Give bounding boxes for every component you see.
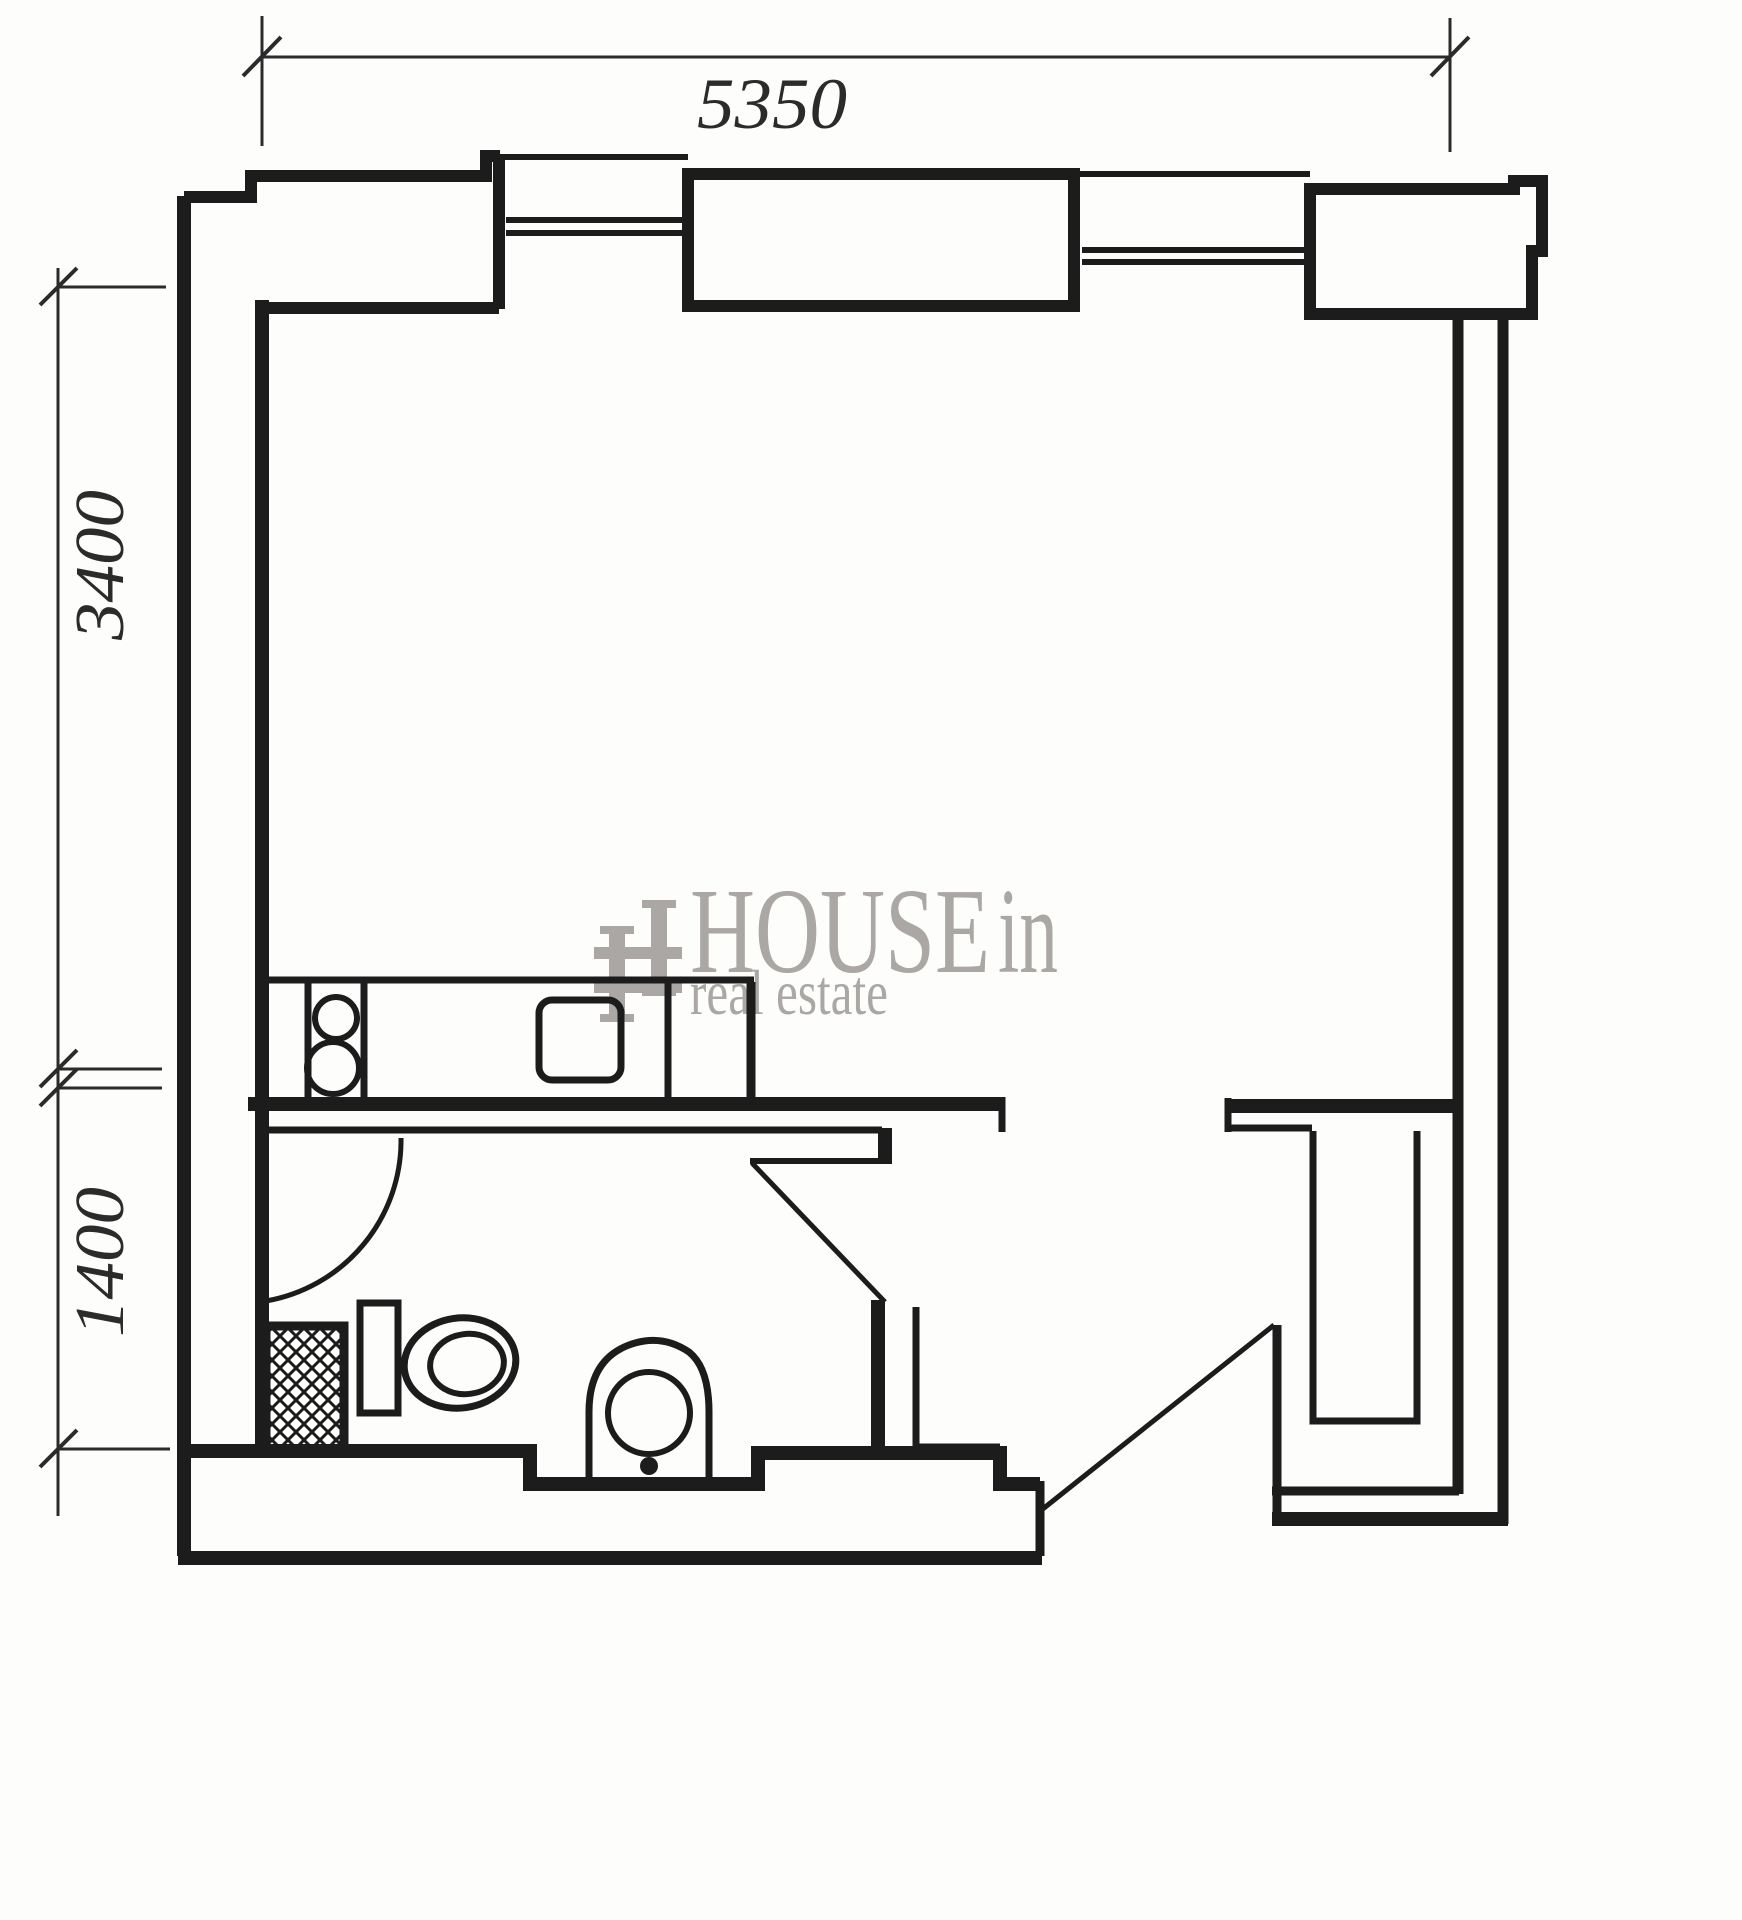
wall-pier-top-left: [184, 156, 500, 309]
right-wall: [1458, 314, 1503, 1524]
dimension-label-upper: 3400: [62, 490, 139, 641]
toilet-bowl-icon: [426, 1329, 508, 1399]
hall-closet-icon: [1313, 1131, 1417, 1421]
kitchen-sink-icon: [539, 1000, 621, 1080]
window-right-icon: [1074, 174, 1310, 262]
walls: [178, 156, 1542, 1558]
medium-walls: [751, 982, 1459, 1556]
watermark-brand-suffix: in: [998, 864, 1058, 999]
kitchen-area: [262, 980, 754, 1097]
window-left-icon: [500, 157, 688, 233]
wall-pier-middle: [688, 174, 1074, 306]
washbasin-drain-icon: [640, 1457, 658, 1475]
stove-burner-icon: [315, 997, 357, 1039]
dimension-label-lower: 1400: [62, 1187, 139, 1337]
washbasin-bowl-icon: [608, 1372, 690, 1454]
hallway-area: [1313, 1131, 1417, 1421]
dimension-label-width: 5350: [697, 64, 847, 144]
stove-burner-icon: [307, 1042, 359, 1094]
floor-plan-page: HOUSE in real estate 5350 3400 1400: [0, 0, 1742, 1920]
bathroom-shelf-icon: [360, 1303, 398, 1413]
top-dimension: 5350: [243, 16, 1469, 152]
top-dimension-lines: [262, 16, 1450, 152]
monogram-bar: [594, 947, 682, 959]
monogram-serif: [600, 1014, 634, 1022]
shower-tray-icon: [266, 1326, 344, 1450]
left-dimension: 3400 1400: [40, 268, 170, 1516]
wall-pier-top-right: [1310, 181, 1542, 314]
floor-plan-drawing: HOUSE in real estate 5350 3400 1400: [0, 0, 1742, 1920]
watermark-tagline: real estate: [690, 957, 888, 1028]
watermark: HOUSE in real estate: [594, 864, 1058, 1028]
